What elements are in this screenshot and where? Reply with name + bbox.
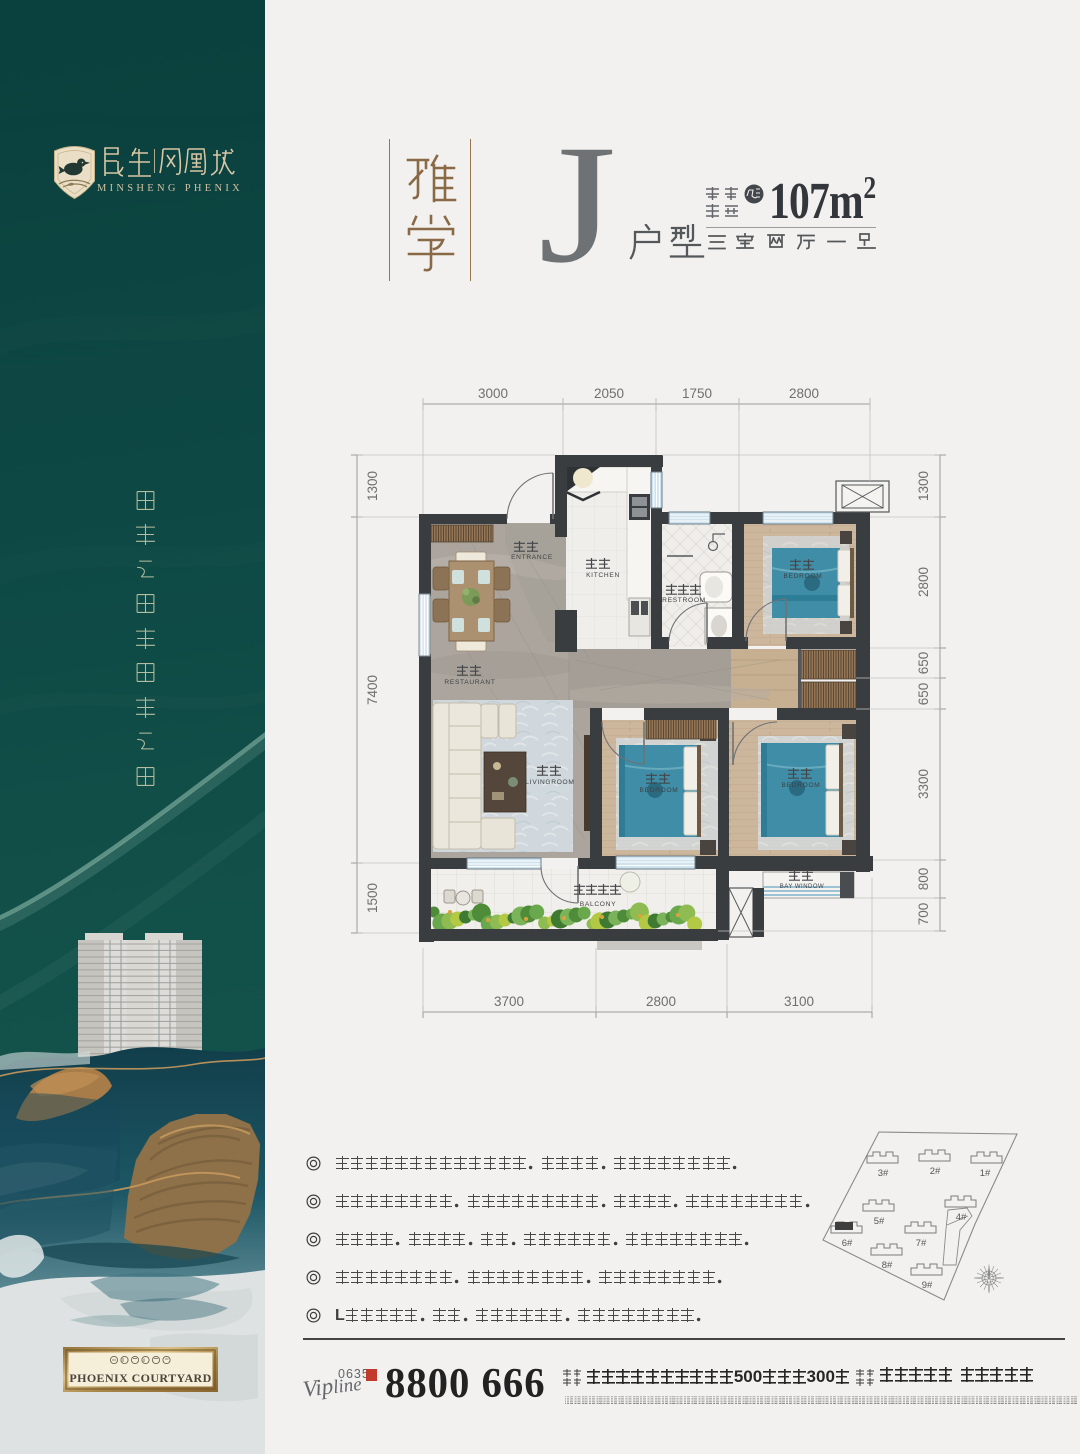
svg-text:2800: 2800 xyxy=(916,567,931,597)
svg-text:BALCONY: BALCONY xyxy=(580,901,616,908)
svg-text:3000: 3000 xyxy=(478,386,508,401)
svg-text:BAY WINDOW: BAY WINDOW xyxy=(780,884,824,890)
svg-text:PHOENIX COURTYARD: PHOENIX COURTYARD xyxy=(69,1371,211,1385)
svg-text:3100: 3100 xyxy=(784,994,814,1009)
svg-text:LIVINGROOM: LIVINGROOM xyxy=(525,779,574,786)
svg-text:1300: 1300 xyxy=(365,471,380,501)
svg-text:3700: 3700 xyxy=(494,994,524,1009)
svg-text:1750: 1750 xyxy=(682,386,712,401)
svg-text:MINSHENG PHENIX: MINSHENG PHENIX xyxy=(97,183,243,194)
svg-text:650: 650 xyxy=(916,652,931,675)
svg-text:7#: 7# xyxy=(916,1238,927,1249)
svg-text:1300: 1300 xyxy=(916,471,931,501)
svg-text:BEDROOM: BEDROOM xyxy=(782,782,821,789)
svg-text:700: 700 xyxy=(916,903,931,926)
svg-text:2800: 2800 xyxy=(646,994,676,1009)
svg-text:7400: 7400 xyxy=(365,675,380,705)
svg-text:KITCHEN: KITCHEN xyxy=(586,572,620,579)
svg-text:J: J xyxy=(538,120,616,270)
svg-text:107m: 107m xyxy=(769,173,863,226)
svg-text:1500: 1500 xyxy=(365,883,380,913)
svg-text:4#: 4# xyxy=(956,1212,967,1223)
svg-text:1#: 1# xyxy=(980,1168,991,1179)
svg-text:RESTAURANT: RESTAURANT xyxy=(444,679,495,686)
svg-text:8#: 8# xyxy=(882,1260,893,1271)
svg-text:2#: 2# xyxy=(930,1166,941,1177)
svg-text:6#: 6# xyxy=(842,1238,853,1249)
svg-text:ENTRANCE: ENTRANCE xyxy=(511,554,553,561)
svg-text:BEDROOM: BEDROOM xyxy=(784,573,823,580)
svg-text:BEDROOM: BEDROOM xyxy=(640,787,679,794)
svg-text:800: 800 xyxy=(916,868,931,891)
svg-text:2: 2 xyxy=(863,170,876,205)
svg-text:5#: 5# xyxy=(874,1216,885,1227)
svg-text:9#: 9# xyxy=(922,1280,933,1291)
svg-text:RESTROOM: RESTROOM xyxy=(662,597,706,604)
svg-text:650: 650 xyxy=(916,683,931,706)
svg-text:3#: 3# xyxy=(878,1168,889,1179)
svg-text:2800: 2800 xyxy=(789,386,819,401)
svg-text:2050: 2050 xyxy=(594,386,624,401)
svg-text:3300: 3300 xyxy=(916,769,931,799)
